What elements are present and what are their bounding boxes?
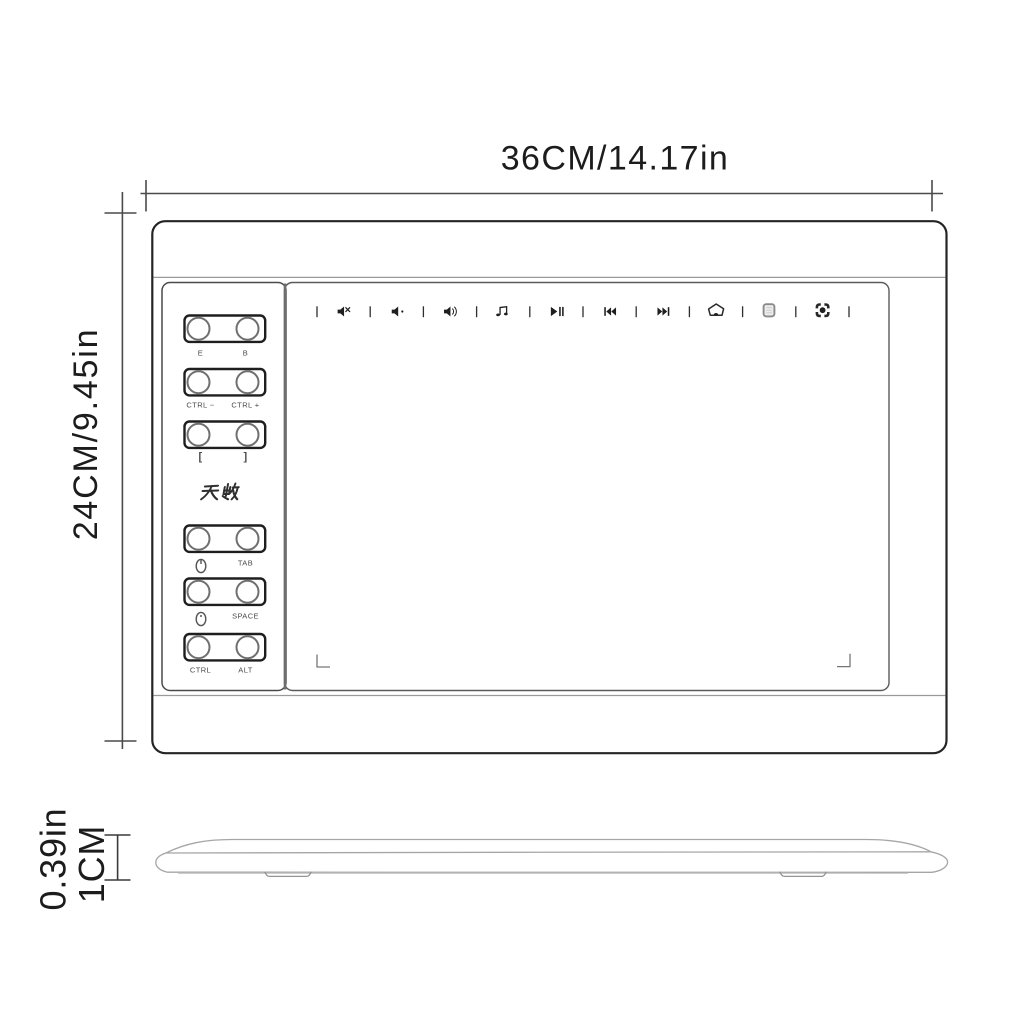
svg-text:ALT: ALT xyxy=(238,666,252,675)
svg-text:24CM/9.45in: 24CM/9.45in xyxy=(67,328,105,541)
svg-text:SPACE: SPACE xyxy=(232,612,259,621)
svg-text:0.39in: 0.39in xyxy=(33,808,74,911)
svg-text:E: E xyxy=(198,349,203,358)
svg-text:36CM/14.17in: 36CM/14.17in xyxy=(501,139,730,177)
svg-text:B: B xyxy=(243,349,248,358)
svg-text:CTRL −: CTRL − xyxy=(186,401,214,410)
svg-text:CTRL +: CTRL + xyxy=(231,401,259,410)
svg-text:]: ] xyxy=(243,451,247,463)
svg-text:TAB: TAB xyxy=(238,559,253,568)
svg-text:[: [ xyxy=(198,451,202,463)
svg-text:CTRL: CTRL xyxy=(190,666,211,675)
svg-text:1CM: 1CM xyxy=(71,825,112,903)
